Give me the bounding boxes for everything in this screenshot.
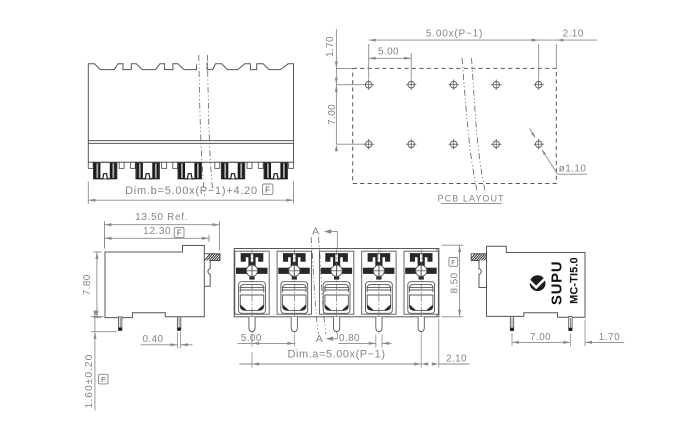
svg-text:A: A [316, 333, 323, 345]
svg-text:2.10: 2.10 [446, 353, 467, 364]
svg-text:MC-TI5.0: MC-TI5.0 [569, 257, 581, 304]
svg-text:0.80: 0.80 [339, 333, 360, 344]
svg-text:1.70: 1.70 [599, 332, 620, 343]
svg-text:1.60±0.20: 1.60±0.20 [84, 354, 95, 409]
svg-text:8.50: 8.50 [449, 272, 460, 293]
svg-text:A: A [312, 226, 319, 238]
svg-text:ø1.10: ø1.10 [559, 164, 587, 175]
svg-text:F: F [451, 259, 455, 266]
svg-text:0.40: 0.40 [142, 334, 163, 345]
svg-text:PCB LAYOUT: PCB LAYOUT [438, 194, 505, 204]
svg-text:7.00: 7.00 [327, 104, 338, 125]
svg-text:Dim.b=5.00x(P−1)+4.20: Dim.b=5.00x(P−1)+4.20 [125, 185, 258, 197]
svg-text:F: F [101, 375, 106, 384]
svg-text:2.10: 2.10 [563, 28, 584, 39]
svg-text:F: F [177, 228, 182, 237]
svg-text:F: F [265, 184, 270, 194]
svg-text:7.80: 7.80 [82, 274, 93, 295]
svg-text:SUPU: SUPU [550, 261, 566, 305]
svg-text:12.30: 12.30 [143, 226, 171, 237]
svg-text:1.70: 1.70 [325, 36, 336, 57]
svg-text:5.00: 5.00 [241, 333, 262, 344]
svg-text:13.50 Ref.: 13.50 Ref. [135, 212, 188, 223]
svg-text:Dim.a=5.00x(P−1): Dim.a=5.00x(P−1) [287, 349, 385, 361]
svg-text:5.00: 5.00 [378, 47, 399, 58]
svg-text:5.00x(P−1): 5.00x(P−1) [426, 28, 483, 39]
svg-text:7.00: 7.00 [530, 332, 551, 343]
